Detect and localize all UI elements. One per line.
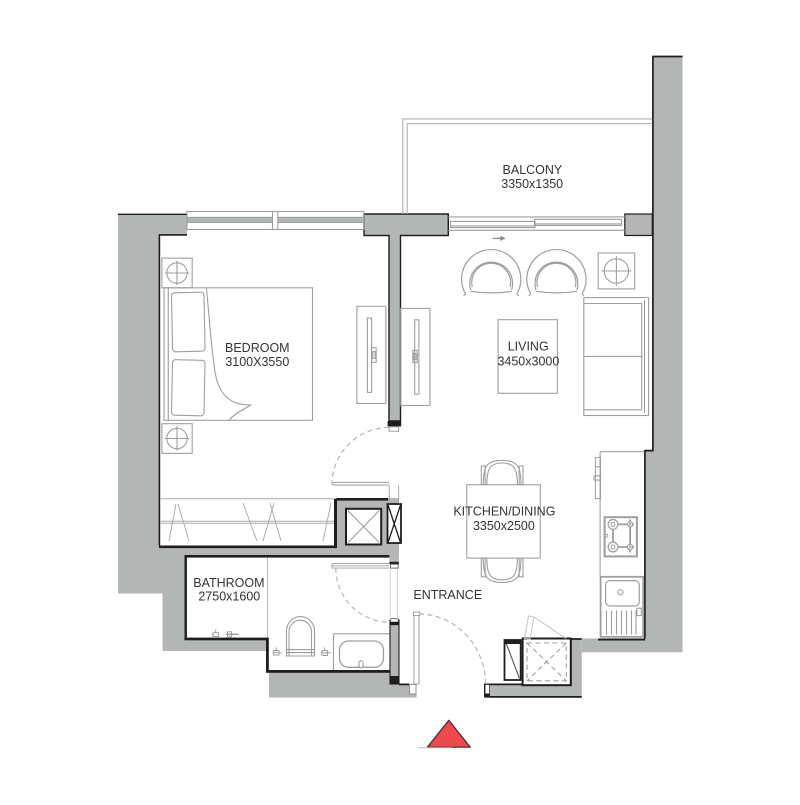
svg-text:BATHROOM: BATHROOM: [193, 576, 264, 590]
svg-text:BALCONY: BALCONY: [503, 163, 563, 177]
svg-text:ENTRANCE: ENTRANCE: [413, 588, 482, 602]
svg-text:3350x2500: 3350x2500: [473, 519, 535, 533]
svg-text:3350x1350: 3350x1350: [501, 177, 563, 191]
svg-text:LIVING: LIVING: [508, 339, 549, 353]
svg-text:3450x3000: 3450x3000: [497, 355, 559, 369]
svg-text:3100X3550: 3100X3550: [225, 355, 289, 369]
svg-text:KITCHEN/DINING: KITCHEN/DINING: [453, 505, 555, 519]
svg-text:2750x1600: 2750x1600: [198, 590, 260, 604]
svg-text:BEDROOM: BEDROOM: [225, 341, 290, 355]
